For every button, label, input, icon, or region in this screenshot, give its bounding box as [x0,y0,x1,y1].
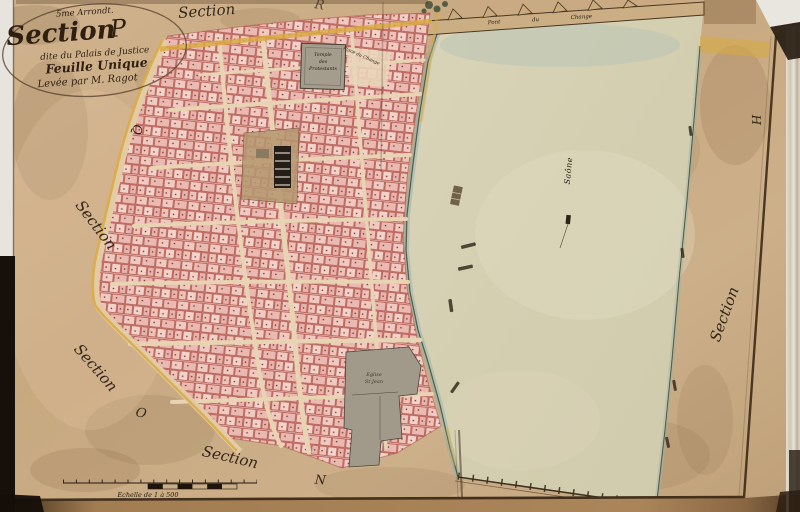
label-church-line1: Eglise [365,372,382,378]
water-highlight-2 [440,370,600,470]
label-letter-h: H [749,113,763,125]
palais-wing [256,149,269,158]
cadastral-map-photo: 5me Arrondt. Section P dite du Palais de… [0,0,800,512]
label-temple-line3: Protestants [308,66,337,72]
label-temple-line1: Temple [314,52,332,58]
cartouche-letter: P [108,14,128,43]
water-highlight [475,150,695,320]
left-dark-edge [0,256,15,512]
label-scale: Echelle de 1 à 500 [116,491,178,499]
palais-de-justice [241,128,299,204]
label-letter-q: Q [129,124,145,136]
palais-main-building [274,146,291,188]
river-saone [406,13,703,504]
label-temple-line2: des [319,59,328,65]
bottom-left-corner [0,494,44,512]
label-church-line2: St Jean [365,379,383,385]
cadastral-map: 5me Arrondt. Section P dite du Palais de… [0,0,800,512]
right-mount-strip [786,26,800,512]
